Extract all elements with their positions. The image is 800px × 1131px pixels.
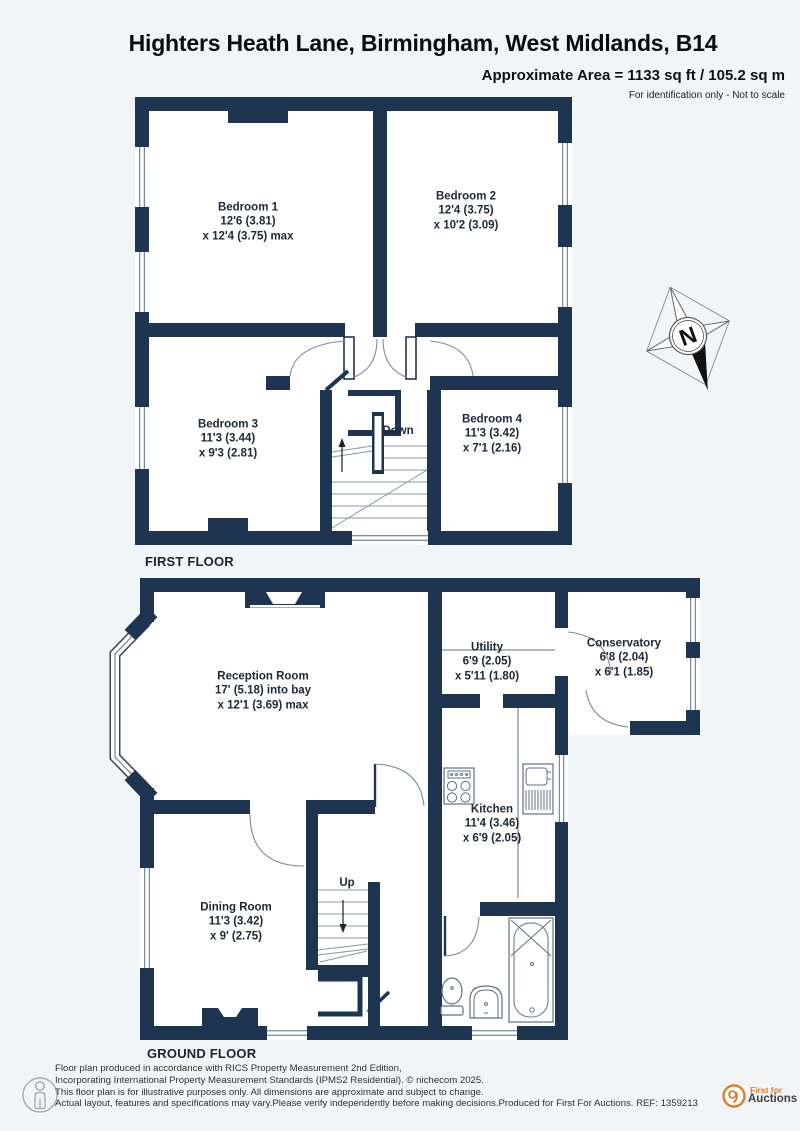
room-dim-1: 12'6 (3.81) bbox=[203, 215, 294, 229]
room-label-bedroom-4: Bedroom 4 11'3 (3.42) x 7'1 (2.16) bbox=[462, 412, 522, 455]
room-name: Reception Room bbox=[215, 669, 311, 683]
disclaimer-line: Actual layout, features and specificatio… bbox=[55, 1098, 715, 1110]
footer-disclaimer: Floor plan produced in accordance with R… bbox=[55, 1063, 715, 1110]
room-dim-1: 12'4 (3.75) bbox=[434, 204, 499, 218]
room-dim-1: 6'8 (2.04) bbox=[587, 651, 661, 665]
stairs-down-label: Down bbox=[382, 425, 413, 437]
disclaimer-line: Incorporating International Property Mea… bbox=[55, 1075, 715, 1087]
ground-floor-caption: GROUND FLOOR bbox=[147, 1046, 256, 1061]
room-dim-2: x 12'4 (3.75) max bbox=[203, 229, 294, 243]
room-label-kitchen: Kitchen 11'4 (3.46) x 6'9 (2.05) bbox=[463, 802, 521, 845]
room-dim-1: 11'3 (3.44) bbox=[198, 432, 258, 446]
room-dim-2: x 6'1 (1.85) bbox=[587, 665, 661, 679]
room-dim-2: x 9'3 (2.81) bbox=[198, 446, 258, 460]
room-dim-1: 17' (5.18) into bay bbox=[215, 684, 311, 698]
room-dim-1: 11'3 (3.42) bbox=[200, 915, 272, 929]
room-name: Dining Room bbox=[200, 900, 272, 914]
room-name: Bedroom 1 bbox=[203, 200, 294, 214]
room-name: Bedroom 4 bbox=[462, 412, 522, 426]
room-dim-2: x 9' (2.75) bbox=[200, 929, 272, 943]
room-dim-2: x 5'11 (1.80) bbox=[455, 669, 519, 683]
room-name: Utility bbox=[455, 640, 519, 654]
basin-icon bbox=[470, 986, 502, 1018]
compass-rose-icon: N bbox=[629, 272, 749, 405]
auctions-logo-line2: Auctions bbox=[748, 1093, 797, 1105]
first-floor-plan bbox=[135, 97, 572, 545]
room-dim-1: 11'4 (3.46) bbox=[463, 817, 521, 831]
first-floor-caption: FIRST FLOOR bbox=[145, 554, 234, 569]
understair-closet bbox=[318, 979, 360, 1014]
room-dim-2: x 12'1 (3.69) max bbox=[215, 698, 311, 712]
room-label-dining: Dining Room 11'3 (3.42) x 9' (2.75) bbox=[200, 900, 272, 943]
room-label-conservatory: Conservatory 6'8 (2.04) x 6'1 (1.85) bbox=[587, 636, 661, 679]
room-label-bedroom-2: Bedroom 2 12'4 (3.75) x 10'2 (3.09) bbox=[434, 189, 499, 232]
bath-icon bbox=[509, 918, 553, 1022]
floorplan-page: Highters Heath Lane, Birmingham, West Mi… bbox=[0, 0, 800, 1131]
room-dim-1: 6'9 (2.05) bbox=[455, 655, 519, 669]
sink-icon bbox=[523, 764, 553, 814]
room-name: Conservatory bbox=[587, 636, 661, 650]
disclaimer-line: This floor plan is for illustrative purp… bbox=[55, 1087, 715, 1099]
toilet-icon bbox=[441, 978, 463, 1015]
nichecom-person-icon bbox=[23, 1078, 57, 1112]
room-label-utility: Utility 6'9 (2.05) x 5'11 (1.80) bbox=[455, 640, 519, 683]
room-label-bedroom-1: Bedroom 1 12'6 (3.81) x 12'4 (3.75) max bbox=[203, 200, 294, 243]
room-dim-1: 11'3 (3.42) bbox=[462, 427, 522, 441]
floorplan-drawing: N bbox=[0, 0, 800, 1131]
room-dim-2: x 10'2 (3.09) bbox=[434, 218, 499, 232]
room-name: Bedroom 3 bbox=[198, 417, 258, 431]
stairs-up-label: Up bbox=[339, 877, 354, 889]
room-label-bedroom-3: Bedroom 3 11'3 (3.44) x 9'3 (2.81) bbox=[198, 417, 258, 460]
disclaimer-line: Floor plan produced in accordance with R… bbox=[55, 1063, 715, 1075]
room-name: Bedroom 2 bbox=[434, 189, 499, 203]
room-dim-2: x 7'1 (2.16) bbox=[462, 441, 522, 455]
room-dim-2: x 6'9 (2.05) bbox=[463, 831, 521, 845]
room-name: Kitchen bbox=[463, 802, 521, 816]
room-label-reception: Reception Room 17' (5.18) into bay x 12'… bbox=[215, 669, 311, 712]
auctions-logo-icon bbox=[724, 1086, 745, 1107]
hob-icon bbox=[444, 768, 474, 804]
